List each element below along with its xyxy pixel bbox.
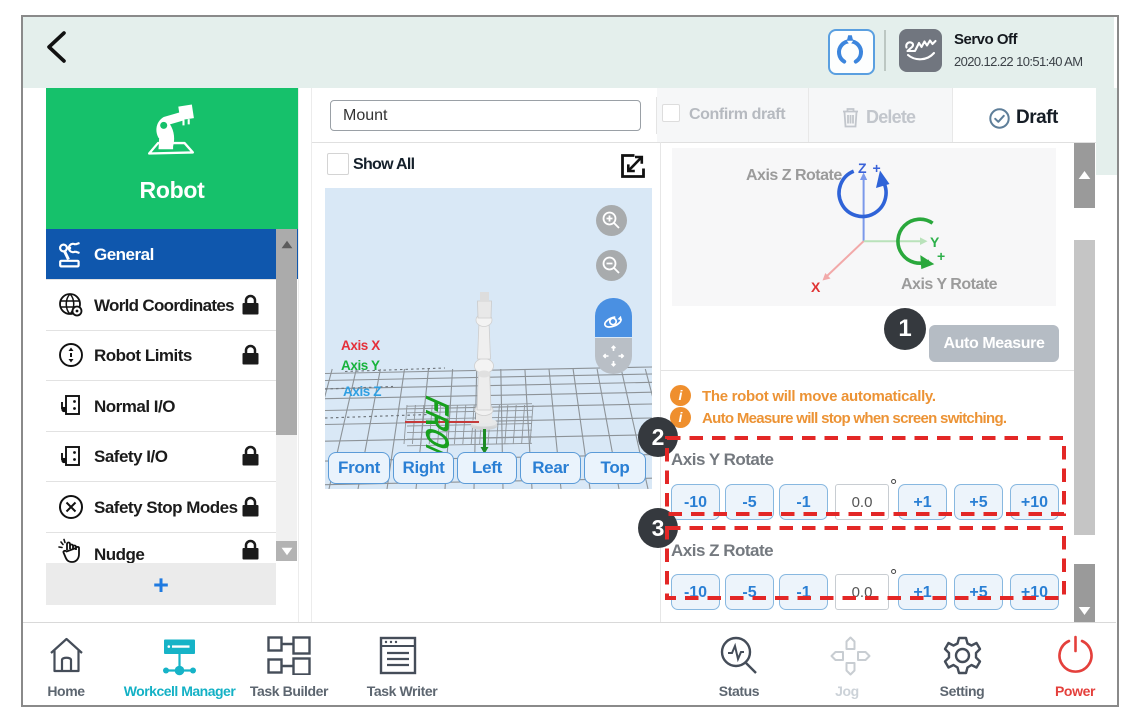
svg-text:Axis Y Rotate: Axis Y Rotate: [901, 276, 998, 293]
svg-text:X: X: [811, 279, 821, 295]
svg-text:+: +: [937, 248, 945, 264]
svg-text:Z +: Z +: [858, 160, 882, 176]
svg-text:Axis Z Rotate: Axis Z Rotate: [746, 167, 842, 184]
